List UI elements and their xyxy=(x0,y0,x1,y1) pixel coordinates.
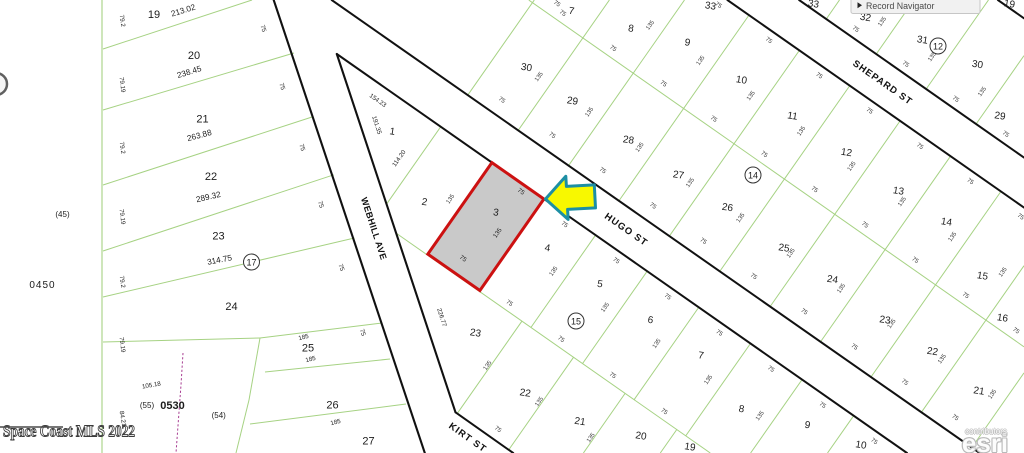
svg-text:15: 15 xyxy=(976,270,989,283)
svg-text:19: 19 xyxy=(684,441,697,453)
svg-text:21: 21 xyxy=(973,385,986,398)
svg-text:11: 11 xyxy=(786,110,798,123)
svg-text:33: 33 xyxy=(807,0,820,11)
svg-text:22: 22 xyxy=(519,387,532,400)
svg-text:27: 27 xyxy=(672,169,685,182)
svg-text:12: 12 xyxy=(933,42,943,52)
svg-text:20: 20 xyxy=(188,50,200,62)
svg-text:19: 19 xyxy=(1003,0,1016,11)
svg-text:29: 29 xyxy=(994,110,1007,123)
svg-text:Record Navigator: Record Navigator xyxy=(866,1,935,11)
svg-text:29: 29 xyxy=(566,95,579,108)
svg-text:31: 31 xyxy=(916,34,929,47)
svg-text:(45): (45) xyxy=(55,210,70,219)
svg-text:21: 21 xyxy=(574,416,587,429)
svg-text:Space Coast MLS 2022: Space Coast MLS 2022 xyxy=(3,422,135,441)
svg-text:25: 25 xyxy=(302,343,314,355)
svg-text:(54): (54) xyxy=(212,411,227,420)
svg-text:contributors: contributors xyxy=(965,427,1007,436)
svg-text:22: 22 xyxy=(926,346,939,359)
svg-text:28: 28 xyxy=(622,134,635,147)
svg-text:24: 24 xyxy=(826,274,839,287)
svg-text:13: 13 xyxy=(892,185,905,198)
svg-text:21: 21 xyxy=(196,114,208,126)
svg-text:10: 10 xyxy=(735,74,748,87)
svg-text:17: 17 xyxy=(246,258,256,268)
svg-text:23: 23 xyxy=(469,327,482,340)
svg-text:23: 23 xyxy=(212,231,224,243)
svg-text:10: 10 xyxy=(855,439,868,452)
svg-text:14: 14 xyxy=(748,171,758,181)
svg-text:22: 22 xyxy=(205,171,217,183)
svg-text:16: 16 xyxy=(996,312,1009,325)
svg-text:26: 26 xyxy=(721,202,734,215)
svg-text:30: 30 xyxy=(520,62,533,75)
svg-text:12: 12 xyxy=(840,147,853,160)
svg-text:27: 27 xyxy=(362,436,374,448)
svg-text:0450: 0450 xyxy=(29,280,55,291)
svg-text:20: 20 xyxy=(635,430,648,443)
svg-text:15: 15 xyxy=(571,317,581,327)
svg-text:0530: 0530 xyxy=(160,400,184,412)
svg-text:(55): (55) xyxy=(140,401,155,410)
svg-text:14: 14 xyxy=(940,216,953,229)
svg-text:30: 30 xyxy=(971,59,984,72)
svg-text:26: 26 xyxy=(326,400,338,412)
svg-text:24: 24 xyxy=(225,301,237,313)
svg-text:19: 19 xyxy=(148,9,160,21)
